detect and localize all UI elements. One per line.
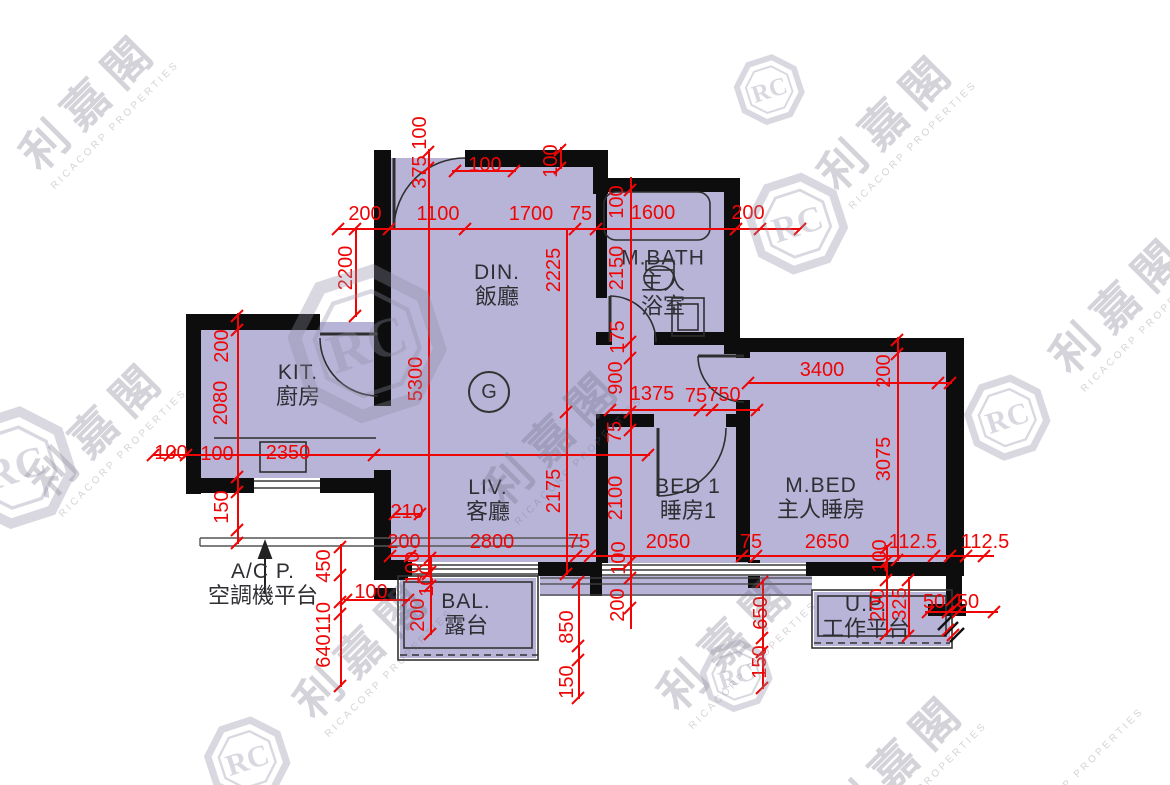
dimension-label: 175 xyxy=(608,320,628,353)
room-abbr: BAL. xyxy=(441,590,491,614)
dimension-label: 100 xyxy=(354,582,387,602)
room-abbr: LIV. xyxy=(466,476,510,500)
dimension-label: 75 xyxy=(685,386,707,406)
dimension-label: 112.5 xyxy=(961,532,1010,552)
dimension-line xyxy=(897,337,899,561)
room-abbr: M.BATH xyxy=(621,247,705,271)
dimension-label: 200 xyxy=(874,354,894,387)
room-label-kitchen: KIT. 廚房 xyxy=(276,361,320,409)
dimension-label: 3400 xyxy=(800,360,845,380)
dimension-label: 200 xyxy=(348,204,381,224)
dimension-label: 100 xyxy=(468,155,501,175)
room-label-balcony: BAL. 露台 xyxy=(441,590,491,638)
dimension-label: 2225 xyxy=(544,248,564,293)
dimension-label: 100 xyxy=(607,185,627,218)
dimension-label: 200 xyxy=(408,598,428,631)
dimension-label: 2175 xyxy=(544,469,564,514)
dimension-label: 850 xyxy=(557,610,577,643)
room-name-zh: 主人睡房 xyxy=(777,497,865,522)
floor-marker-label: G xyxy=(481,381,497,404)
room-label-ac-platform: A/C P. 空調機平台 xyxy=(208,560,318,608)
dimension-label: 50 xyxy=(957,592,979,612)
dimension-label: 50 xyxy=(923,592,945,612)
dimension-line xyxy=(390,555,994,557)
dimension-label: 2650 xyxy=(805,532,850,552)
dimension-label: 75 xyxy=(740,532,762,552)
dimension-label: 900 xyxy=(606,361,626,394)
dimension-label: 100 xyxy=(154,443,187,463)
dimension-label: 150 xyxy=(212,490,232,523)
dimension-label: 210 xyxy=(390,502,423,522)
dimension-label: 640 xyxy=(314,634,334,667)
room-abbr: A/C P. xyxy=(208,560,318,584)
dimension-label: 200 xyxy=(731,203,764,223)
dimension-line xyxy=(566,228,568,575)
dimension-label: 200 xyxy=(608,588,628,621)
dimension-label: 2080 xyxy=(211,381,231,426)
dimension-label: 1375 xyxy=(630,384,675,404)
dimension-label: 2150 xyxy=(607,246,627,291)
dimension-label: 100 xyxy=(870,539,890,572)
dimension-label: 100 xyxy=(609,541,629,574)
floor-plan-canvas: DIN. 飯廳 KIT. 廚房 M.BATH 主人浴室 LIV. 客廳 BED … xyxy=(0,0,1170,785)
dimension-label: 2200 xyxy=(336,246,356,291)
dimension-label: 75 xyxy=(568,532,590,552)
dimension-line xyxy=(338,228,800,230)
dimension-label: 1100 xyxy=(416,204,459,224)
room-label-dining: DIN. 飯廳 xyxy=(474,261,520,309)
room-name-zh: 露台 xyxy=(441,613,491,638)
linework-layer xyxy=(0,0,1170,785)
dimension-label: 100 xyxy=(410,116,430,149)
room-name-zh: 睡房1 xyxy=(655,498,721,523)
dimension-label: 650 xyxy=(751,596,771,629)
dimension-label: 110 xyxy=(314,602,334,634)
room-label-master-bath: M.BATH 主人浴室 xyxy=(621,247,705,320)
room-abbr: KIT. xyxy=(276,361,320,385)
dimension-label: 100 xyxy=(541,144,561,177)
room-label-living: LIV. 客廳 xyxy=(466,476,510,524)
room-abbr: M.BED xyxy=(777,474,865,498)
dimension-line xyxy=(578,579,580,699)
dimension-label: 200 xyxy=(387,532,420,552)
room-label-master-bed: M.BED 主人睡房 xyxy=(777,474,865,522)
windows xyxy=(254,478,806,577)
dimension-label: 750 xyxy=(707,385,740,405)
dimension-label: 75 xyxy=(570,204,592,224)
dimension-label: 100 xyxy=(200,444,233,464)
room-abbr: DIN. xyxy=(474,261,520,285)
dimension-label: 2350 xyxy=(266,443,311,463)
dimension-label: 100 xyxy=(417,563,437,596)
dimension-label: 375 xyxy=(410,155,430,188)
room-name-zh: 飯廳 xyxy=(474,284,520,309)
floor-marker: G xyxy=(468,371,510,413)
dimension-label: 2800 xyxy=(470,532,515,552)
dimension-label: 150 xyxy=(557,665,577,698)
room-abbr: BED 1 xyxy=(655,475,721,499)
dimension-label: 150 xyxy=(750,645,770,678)
room-name-zh: 空調機平台 xyxy=(208,583,318,608)
dimension-label: 112.5 xyxy=(889,532,938,552)
dimension-line xyxy=(237,313,239,544)
dimension-label: 75 xyxy=(605,421,625,443)
dimension-label: 2050 xyxy=(646,532,691,552)
dimension-label: 1700 xyxy=(509,204,554,224)
dimension-line xyxy=(748,382,952,384)
room-name-zh: 主人浴室 xyxy=(638,270,688,319)
dimension-line xyxy=(340,544,342,687)
room-label-bed1: BED 1 睡房1 xyxy=(655,475,721,523)
dimension-label: 1600 xyxy=(631,203,676,223)
dimension-label: 5300 xyxy=(406,357,426,402)
dimension-label: 2100 xyxy=(606,476,626,521)
dimension-label: 325 xyxy=(890,587,910,620)
dimension-label: 200 xyxy=(868,588,888,621)
room-name-zh: 廚房 xyxy=(276,384,320,409)
dimension-label: 200 xyxy=(212,329,232,362)
dimension-label: 450 xyxy=(314,549,334,582)
dimension-label: 3075 xyxy=(874,437,894,482)
room-name-zh: 客廳 xyxy=(466,499,510,524)
kitchen-door-arc xyxy=(320,338,378,396)
